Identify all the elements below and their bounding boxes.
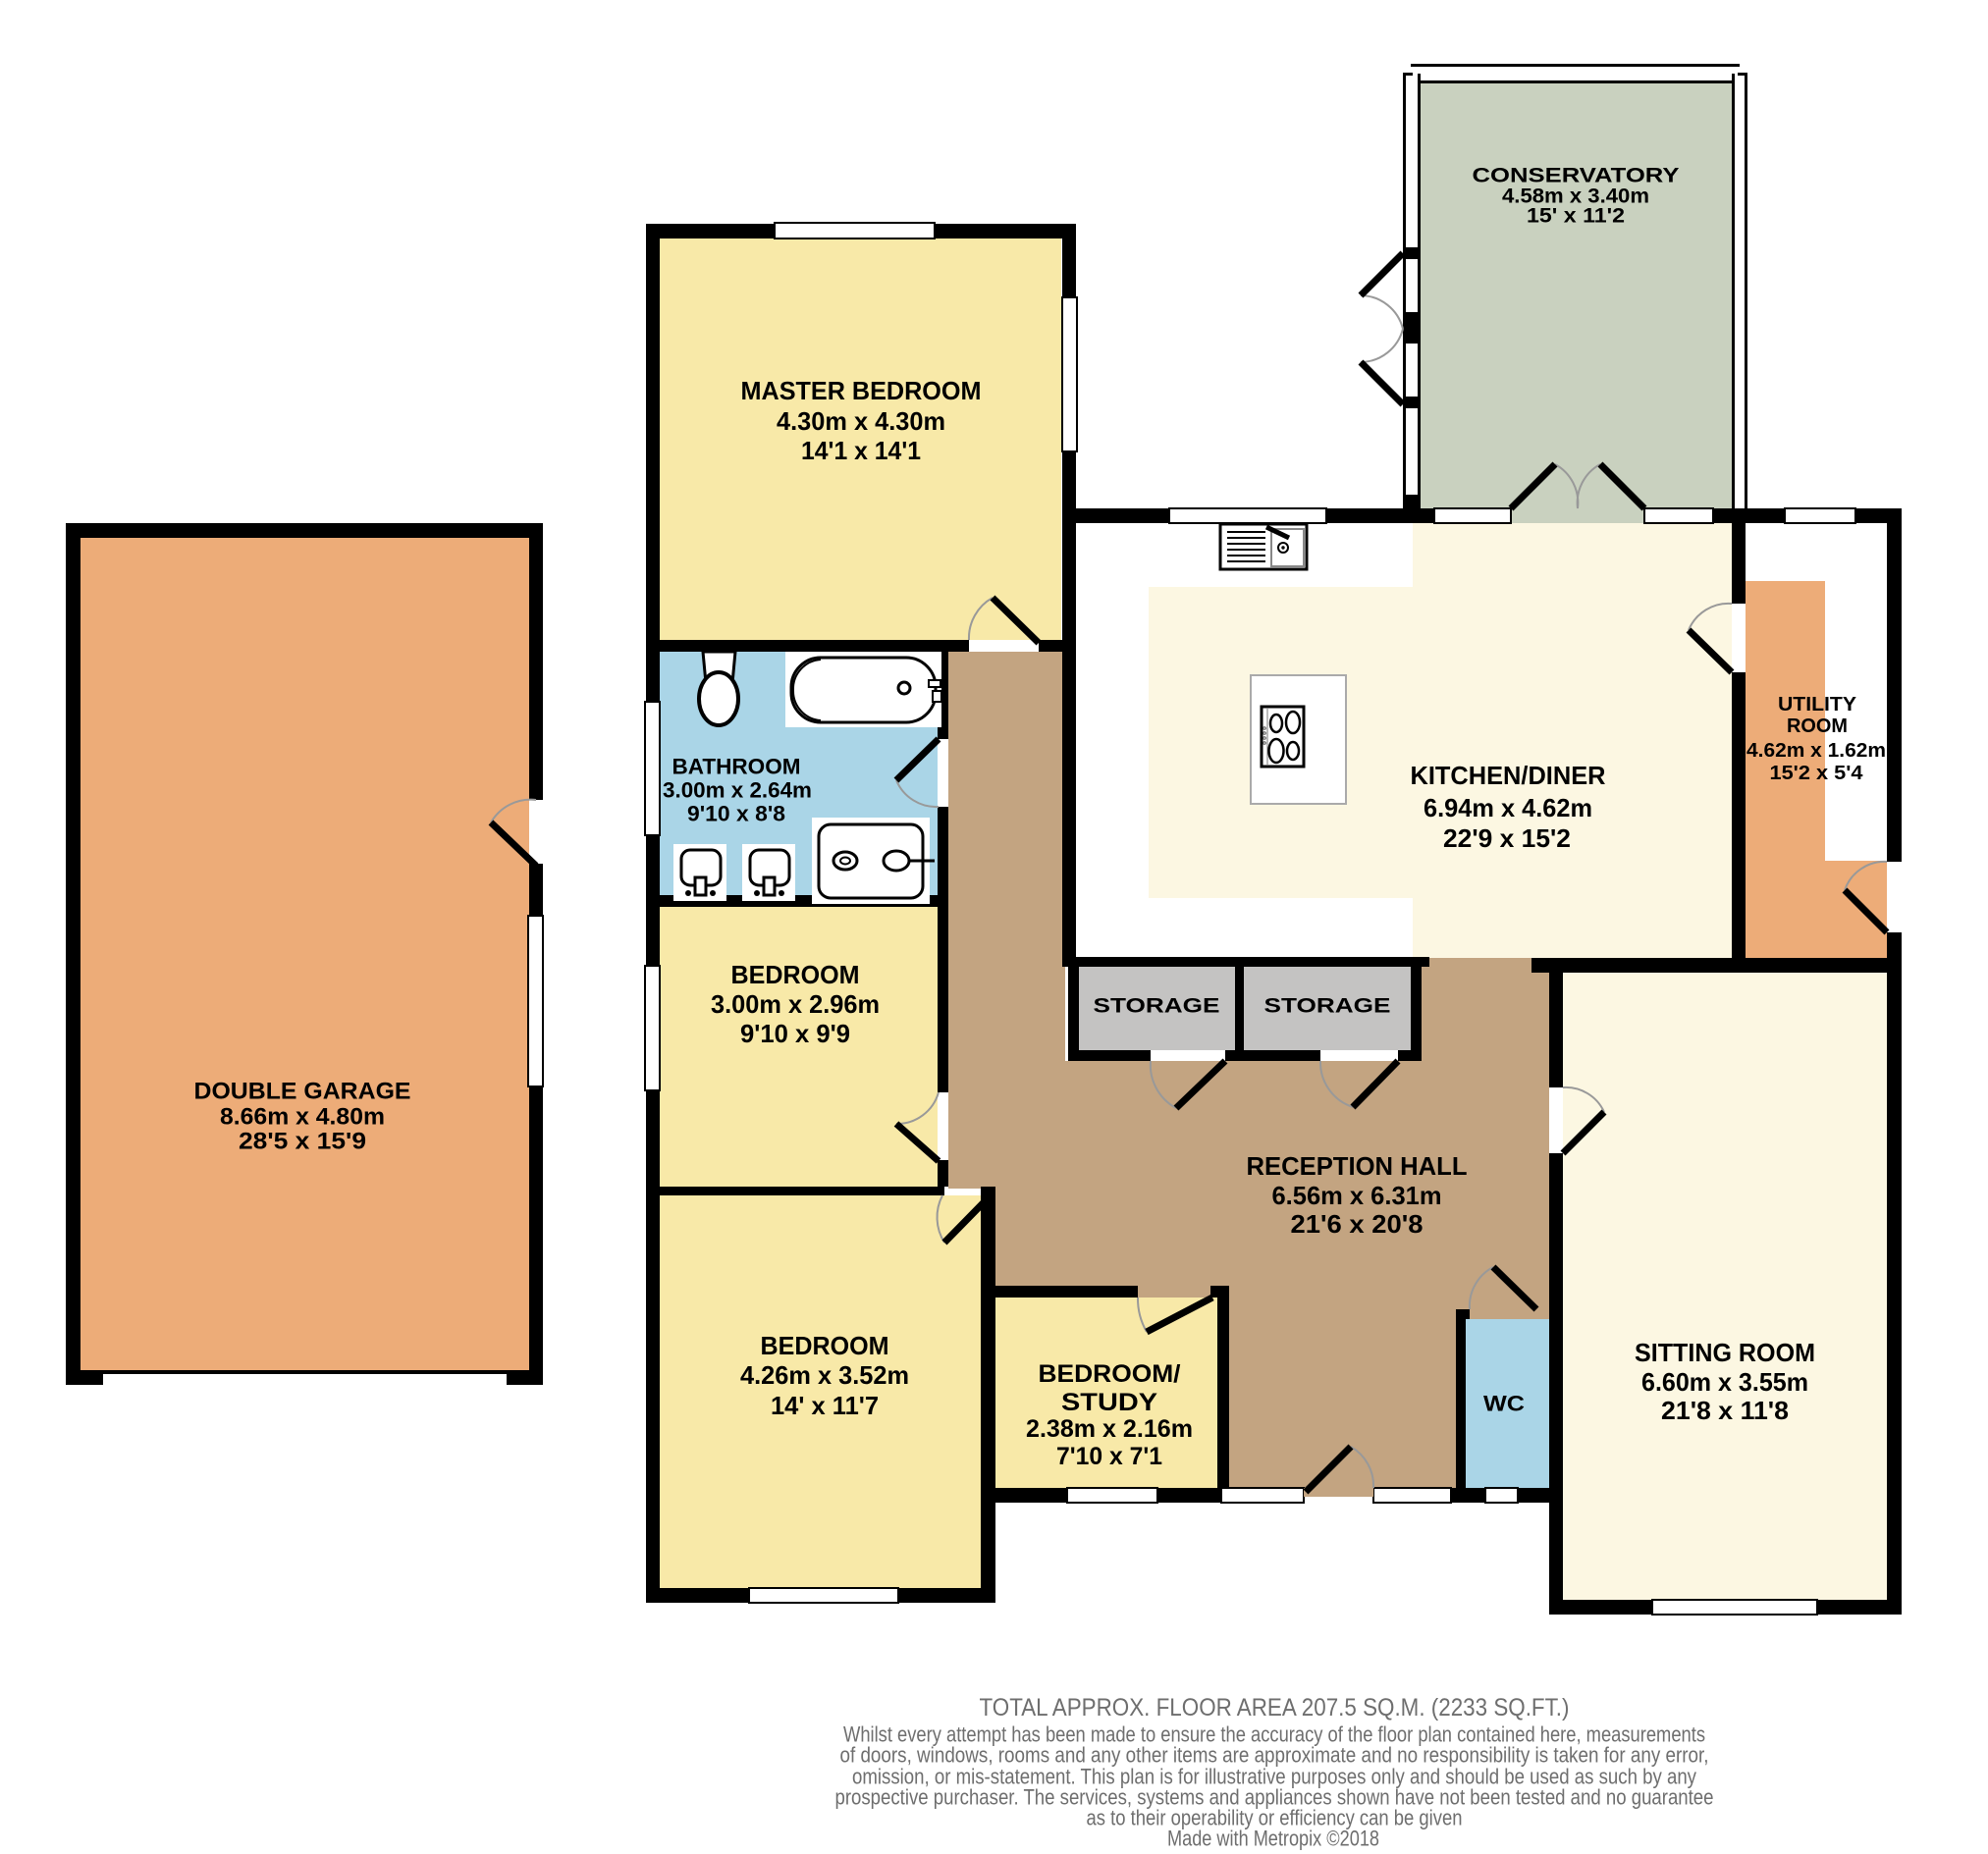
svg-text:MASTER BEDROOM: MASTER BEDROOM [741, 376, 982, 405]
svg-text:WC: WC [1483, 1392, 1525, 1416]
svg-text:3.00m x 2.96m: 3.00m x 2.96m [711, 989, 880, 1019]
svg-text:CONSERVATORY: CONSERVATORY [1473, 165, 1680, 187]
svg-text:9'10 x 9'9: 9'10 x 9'9 [740, 1019, 850, 1048]
svg-text:3.00m x 2.64m: 3.00m x 2.64m [663, 778, 812, 803]
svg-text:9'10 x 8'8: 9'10 x 8'8 [687, 802, 785, 826]
svg-text:BATHROOM: BATHROOM [672, 755, 801, 779]
svg-text:4.26m x 3.52m: 4.26m x 3.52m [740, 1360, 909, 1390]
svg-text:BEDROOM/: BEDROOM/ [1039, 1360, 1181, 1388]
svg-text:UTILITY: UTILITY [1778, 694, 1857, 715]
svg-text:6.60m x 3.55m: 6.60m x 3.55m [1641, 1367, 1808, 1397]
svg-text:21'6 x 20'8: 21'6 x 20'8 [1291, 1209, 1424, 1239]
svg-text:14'1 x 14'1: 14'1 x 14'1 [801, 436, 921, 465]
svg-text:8.66m x 4.80m: 8.66m x 4.80m [220, 1104, 385, 1131]
svg-text:SITTING ROOM: SITTING ROOM [1635, 1338, 1815, 1367]
svg-text:15' x 11'2: 15' x 11'2 [1527, 205, 1625, 228]
svg-text:2.38m x 2.16m: 2.38m x 2.16m [1026, 1415, 1193, 1443]
svg-text:4.62m x 1.62m: 4.62m x 1.62m [1746, 740, 1886, 762]
svg-text:STORAGE: STORAGE [1094, 995, 1220, 1018]
svg-text:28'5 x 15'9: 28'5 x 15'9 [239, 1129, 366, 1155]
svg-text:14' x 11'7: 14' x 11'7 [771, 1391, 879, 1420]
svg-text:BEDROOM: BEDROOM [731, 960, 860, 989]
svg-text:KITCHEN/DINER: KITCHEN/DINER [1411, 761, 1606, 790]
svg-text:21'8 x 11'8: 21'8 x 11'8 [1661, 1396, 1789, 1425]
svg-text:ROOM: ROOM [1787, 715, 1848, 737]
svg-text:6.94m x 4.62m: 6.94m x 4.62m [1424, 793, 1592, 822]
svg-text:STORAGE: STORAGE [1264, 995, 1391, 1018]
svg-text:22'9 x 15'2: 22'9 x 15'2 [1443, 823, 1571, 853]
svg-text:RECEPTION HALL: RECEPTION HALL [1247, 1151, 1468, 1181]
svg-text:STUDY: STUDY [1061, 1389, 1157, 1416]
svg-text:7'10 x 7'1: 7'10 x 7'1 [1056, 1443, 1162, 1470]
svg-text:TOTAL APPROX. FLOOR AREA 207.5: TOTAL APPROX. FLOOR AREA 207.5 SQ.M. (22… [980, 1694, 1570, 1722]
svg-text:DOUBLE GARAGE: DOUBLE GARAGE [194, 1079, 411, 1105]
svg-text:BEDROOM: BEDROOM [761, 1331, 889, 1360]
svg-text:Made with Metropix ©2018: Made with Metropix ©2018 [1167, 1827, 1379, 1851]
svg-text:6.56m x 6.31m: 6.56m x 6.31m [1272, 1181, 1442, 1210]
svg-text:4.30m x 4.30m: 4.30m x 4.30m [777, 406, 945, 436]
svg-text:15'2 x 5'4: 15'2 x 5'4 [1770, 763, 1864, 784]
